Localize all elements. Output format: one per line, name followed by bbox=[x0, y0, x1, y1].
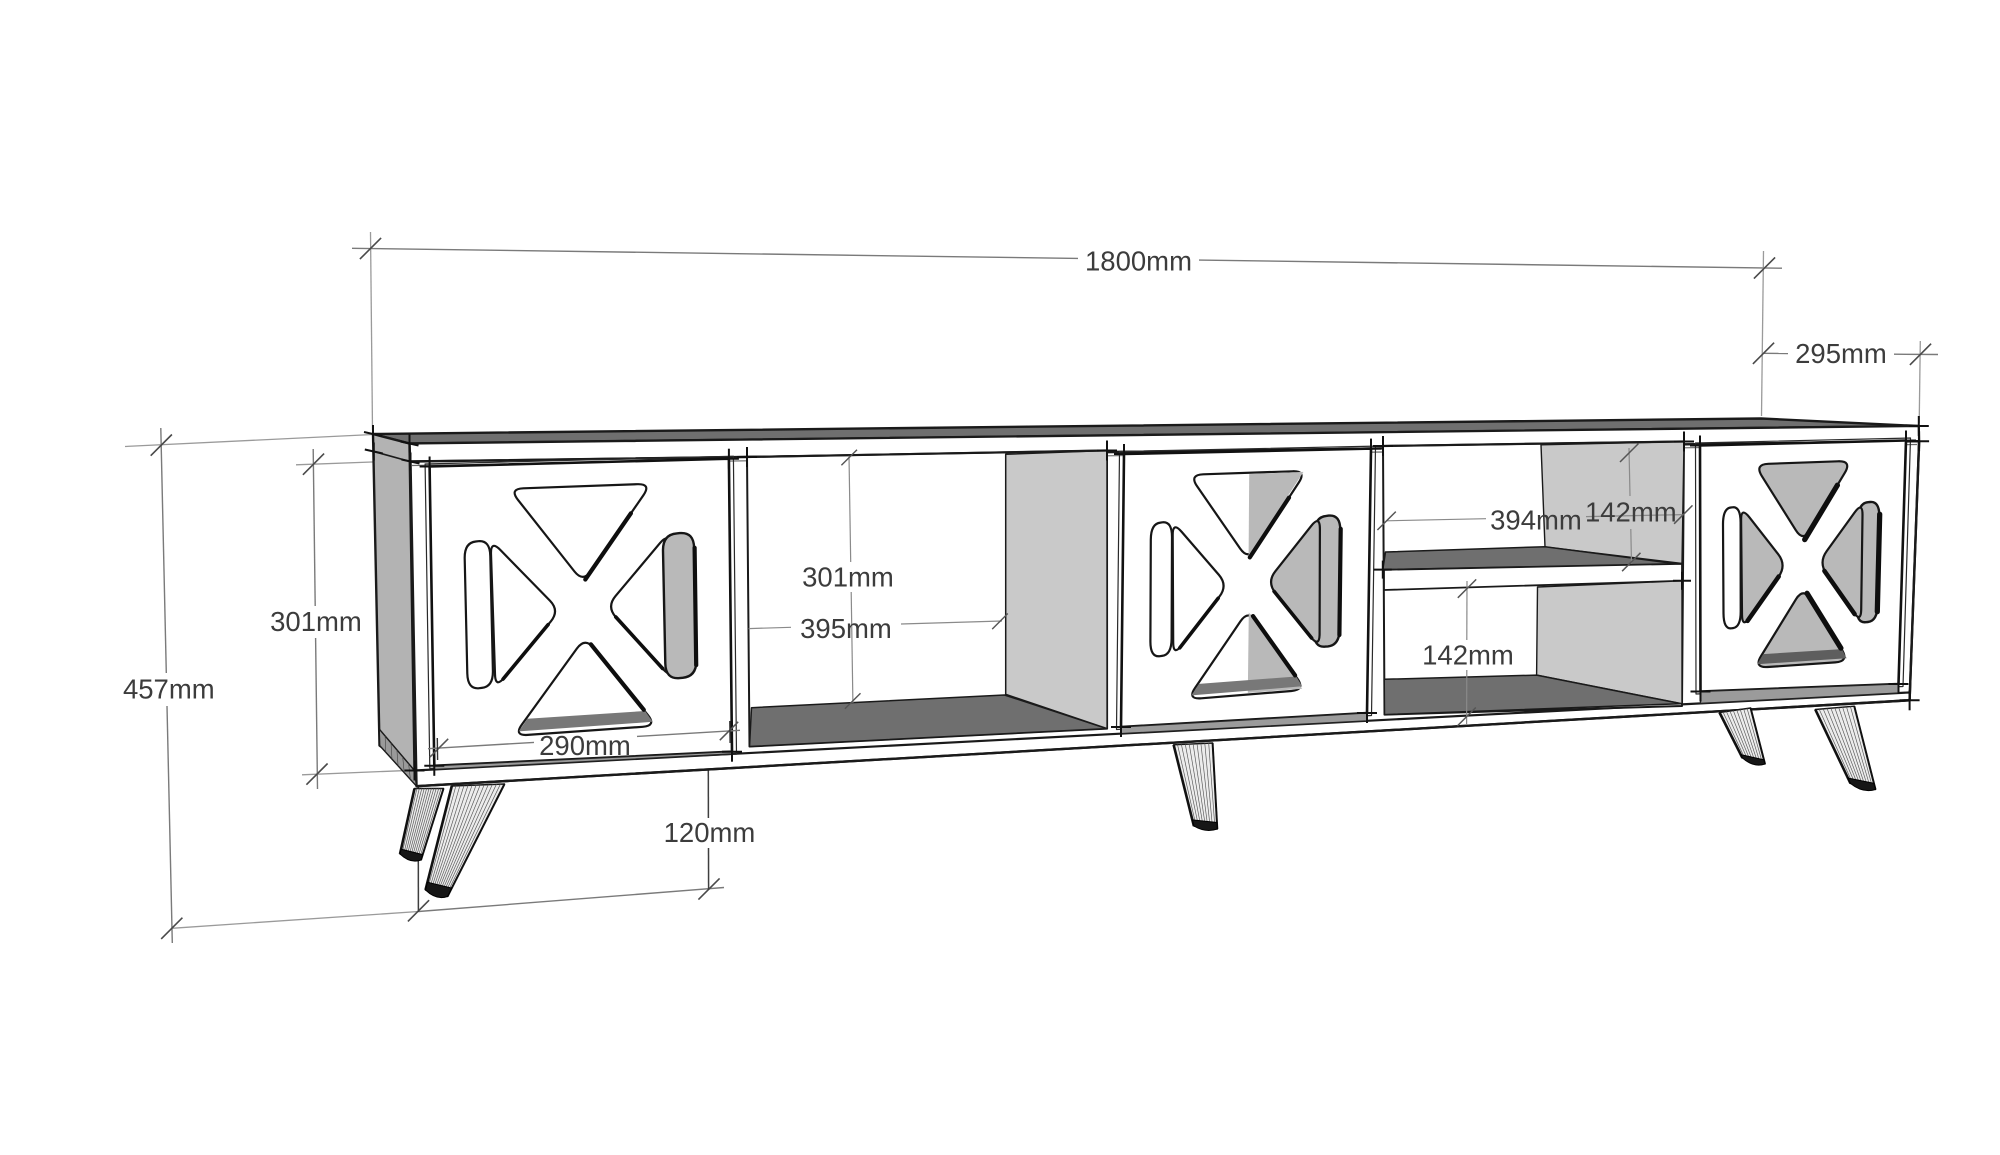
svg-text:142mm: 142mm bbox=[1585, 497, 1677, 528]
svg-text:395mm: 395mm bbox=[800, 613, 892, 644]
svg-text:301mm: 301mm bbox=[270, 606, 362, 637]
svg-text:295mm: 295mm bbox=[1795, 338, 1887, 369]
svg-text:301mm: 301mm bbox=[802, 562, 894, 593]
svg-text:394mm: 394mm bbox=[1490, 505, 1582, 536]
svg-text:457mm: 457mm bbox=[123, 674, 215, 705]
svg-text:290mm: 290mm bbox=[539, 730, 631, 761]
svg-text:1800mm: 1800mm bbox=[1085, 246, 1192, 277]
svg-text:120mm: 120mm bbox=[664, 817, 756, 848]
svg-text:142mm: 142mm bbox=[1422, 640, 1514, 671]
